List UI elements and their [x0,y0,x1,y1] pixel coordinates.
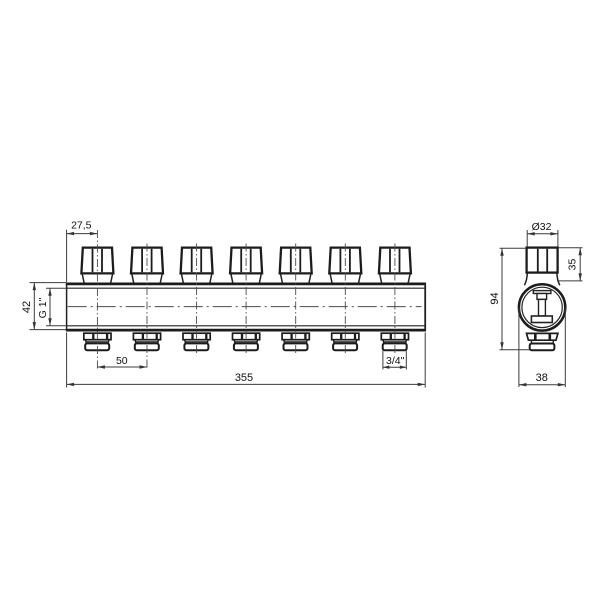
svg-text:42: 42 [21,301,33,313]
svg-text:38: 38 [536,372,548,384]
svg-text:Ø32: Ø32 [532,221,552,233]
svg-text:3/4": 3/4" [386,355,405,367]
svg-text:G 1": G 1" [37,297,49,318]
svg-text:27,5: 27,5 [71,220,92,232]
svg-text:94: 94 [489,292,501,304]
svg-text:35: 35 [567,259,579,271]
svg-text:50: 50 [116,355,128,367]
svg-text:355: 355 [235,372,253,384]
